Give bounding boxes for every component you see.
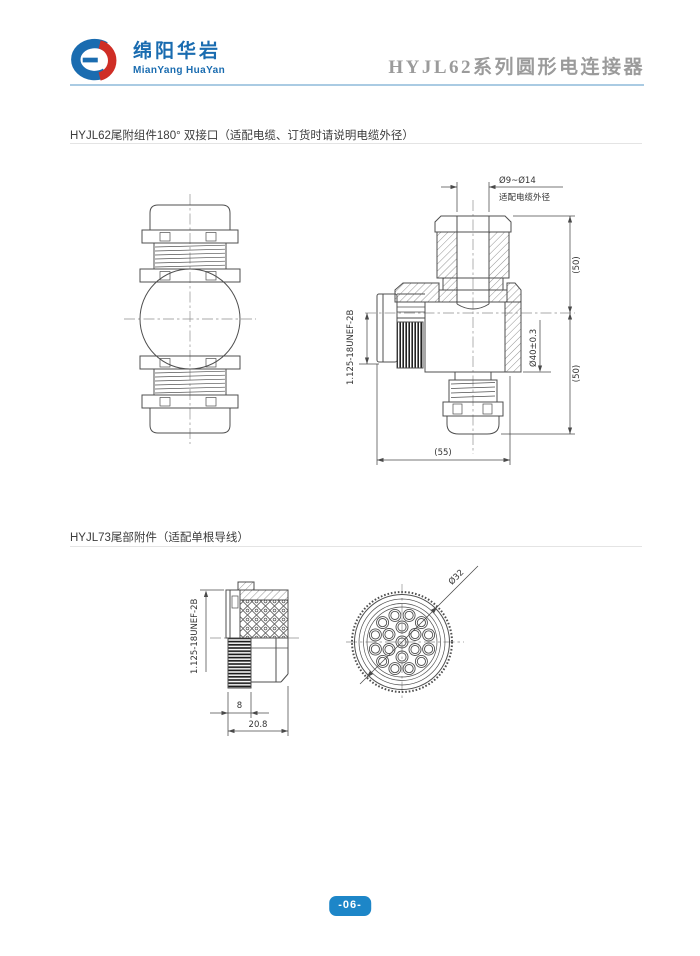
page-number-badge: -06- <box>329 896 371 916</box>
section1-rule <box>70 143 642 144</box>
datasheet-page: 绵阳华岩 MianYang HuaYan HYJL62系列圆形电连接器 HYJL… <box>0 0 700 956</box>
logo-text-en: MianYang HuaYan <box>133 65 225 76</box>
section-view-dimensions: Ø9~Ø14 适配电缆外径 (50) (50) Ø40±0.3 (55) <box>346 175 582 465</box>
company-logo: 绵阳华岩 MianYang HuaYan <box>62 37 225 89</box>
dim-body-dia-label: Ø40±0.3 <box>528 329 539 367</box>
drawing-180deg-adapter-section-view: Ø9~Ø14 适配电缆外径 (50) (50) Ø40±0.3 (55) <box>333 170 598 485</box>
drawing-tail-accessory-side-view: 8 20.8 1.125-18UNEF-2B <box>180 570 308 742</box>
drawing-180deg-adapter-front-view <box>118 188 270 450</box>
dim-height-lower-label: (50) <box>572 365 582 382</box>
dim-cable-range-label: Ø9~Ø14 <box>499 175 536 186</box>
dim-cable-note-label: 适配电缆外径 <box>499 192 551 203</box>
section-view-geometry <box>377 216 521 434</box>
dim-face-dia-label: Ø32 <box>446 567 466 587</box>
logo-text-cn: 绵阳华岩 <box>133 41 225 63</box>
dim-overall-length-label: 20.8 <box>249 720 268 730</box>
logo-icon <box>62 37 126 89</box>
side-view-geometry <box>226 582 288 688</box>
dim-nut-length-label: 8 <box>237 701 242 711</box>
dim-thread-spec-label-2: 1.125-18UNEF-2B <box>190 598 200 674</box>
dim-thread-spec-label: 1.125-18UNEF-2B <box>346 309 356 385</box>
dim-overall-width-label: (55) <box>434 448 451 458</box>
header-rule <box>70 84 644 86</box>
dim-height-upper-label: (50) <box>572 256 582 273</box>
document-title: HYJL62系列圆形电连接器 <box>388 52 645 79</box>
drawing-tail-accessory-face-view: Ø32 <box>346 563 496 718</box>
section2-rule <box>70 546 642 547</box>
section1-title: HYJL62尾附组件180° 双接口（适配电缆、订货时请说明电缆外径） <box>70 127 414 143</box>
section2-title: HYJL73尾部附件（适配单根导线） <box>70 529 249 545</box>
face-view-dimensions: Ø32 <box>360 566 478 684</box>
